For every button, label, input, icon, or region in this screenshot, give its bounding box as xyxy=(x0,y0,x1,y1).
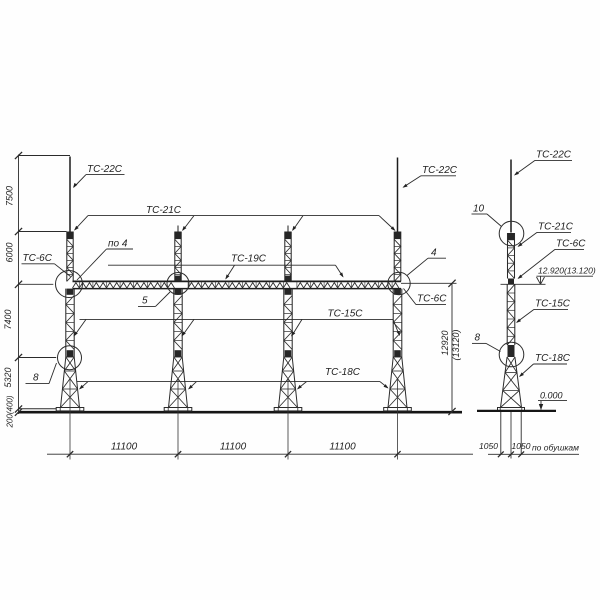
svg-text:1050: 1050 xyxy=(479,441,498,451)
svg-text:ТС-6С: ТС-6С xyxy=(417,294,447,305)
svg-text:11100: 11100 xyxy=(111,442,138,453)
svg-text:8: 8 xyxy=(475,333,481,344)
svg-text:ТС-6С: ТС-6С xyxy=(23,253,53,264)
svg-text:ТС-22С: ТС-22С xyxy=(536,150,572,161)
svg-text:1050: 1050 xyxy=(512,441,531,451)
svg-text:по 4: по 4 xyxy=(108,239,128,250)
svg-text:11100: 11100 xyxy=(329,442,356,453)
svg-text:4: 4 xyxy=(431,248,437,259)
svg-text:ТС-19С: ТС-19С xyxy=(231,254,267,265)
svg-text:ТС-18С: ТС-18С xyxy=(535,353,571,364)
svg-text:7500: 7500 xyxy=(5,186,15,206)
svg-text:ТС-21С: ТС-21С xyxy=(538,222,574,233)
svg-text:ТС-21С: ТС-21С xyxy=(146,205,182,216)
svg-text:0.000: 0.000 xyxy=(540,391,563,401)
svg-text:10: 10 xyxy=(473,204,485,215)
svg-text:(13120): (13120) xyxy=(451,329,461,360)
svg-text:12.920(13.120): 12.920(13.120) xyxy=(538,266,596,276)
svg-text:ТС-6С: ТС-6С xyxy=(556,239,586,250)
svg-text:5320: 5320 xyxy=(3,367,13,387)
svg-text:ТС-18С: ТС-18С xyxy=(325,367,361,378)
svg-text:ТС-22С: ТС-22С xyxy=(87,164,123,175)
svg-text:7400: 7400 xyxy=(3,309,13,329)
svg-text:5: 5 xyxy=(142,296,148,307)
svg-text:по обушкам: по обушкам xyxy=(532,443,579,453)
svg-text:6000: 6000 xyxy=(5,242,15,262)
svg-text:ТС-22С: ТС-22С xyxy=(422,165,458,176)
svg-text:ТС-15С: ТС-15С xyxy=(535,299,571,310)
svg-text:12920: 12920 xyxy=(440,330,450,355)
svg-text:200(400): 200(400) xyxy=(6,395,15,428)
svg-text:8: 8 xyxy=(33,373,39,384)
svg-text:11100: 11100 xyxy=(220,442,247,453)
svg-text:ТС-15С: ТС-15С xyxy=(328,309,364,320)
